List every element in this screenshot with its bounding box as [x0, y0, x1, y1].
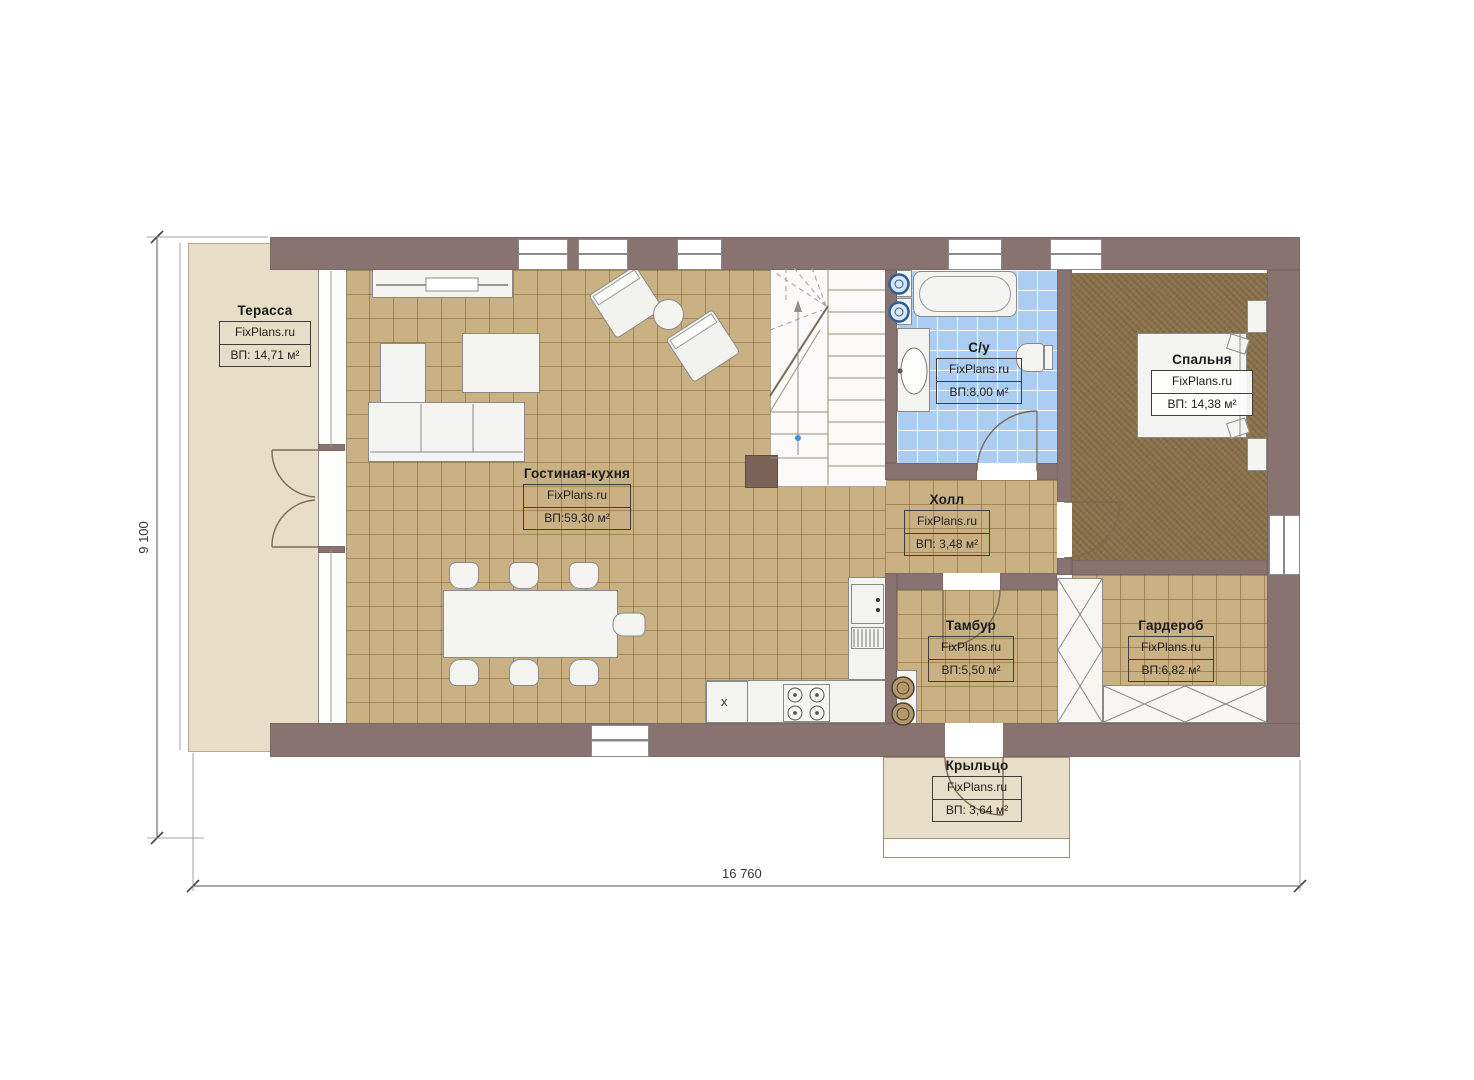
room-name: Крыльцо	[932, 758, 1022, 773]
room-info-box: FixPlans.ru ВП: 14,38 м²	[1151, 370, 1253, 416]
room-area: ВП:5,50 м²	[929, 659, 1013, 682]
dining-chair	[613, 613, 646, 637]
watermark-text: FixPlans.ru	[929, 637, 1013, 659]
kitchen-sink	[851, 584, 884, 624]
room-name: Тамбур	[928, 618, 1014, 633]
room-label-terrace: Терасса FixPlans.ru ВП: 14,71 м²	[219, 303, 311, 367]
coffee-table	[462, 333, 540, 393]
room-area: ВП:8,00 м²	[937, 381, 1021, 404]
dimension-label-vertical: 9 100	[136, 521, 151, 554]
wall-bedroom-wardrobe	[1072, 560, 1267, 575]
room-area: ВП: 3,64 м²	[933, 799, 1021, 822]
appliance-mark-label: x	[721, 694, 728, 709]
room-name: Спальня	[1151, 352, 1253, 367]
wardrobe-cabinet-left	[1057, 578, 1103, 723]
room-name: Гостиная-кухня	[523, 466, 631, 481]
wall-kitchen-vestibule	[885, 573, 897, 723]
watermark-text: FixPlans.ru	[1129, 637, 1213, 659]
wall-bedroom-left-upper	[1057, 270, 1072, 502]
entrance-door-opening	[945, 723, 1003, 757]
room-name: Холл	[904, 492, 990, 507]
tv-console	[372, 268, 513, 298]
room-label-bathroom: С/у FixPlans.ru ВП:8,00 м²	[936, 340, 1022, 404]
room-label-vestibule: Тамбур FixPlans.ru ВП:5,50 м²	[928, 618, 1014, 682]
dining-chair	[509, 659, 539, 686]
room-info-box: FixPlans.ru ВП: 3,48 м²	[904, 510, 990, 556]
room-area: ВП: 14,71 м²	[220, 344, 310, 367]
room-info-box: FixPlans.ru ВП:5,50 м²	[928, 636, 1014, 682]
window-top-2	[578, 239, 628, 270]
terrace-glazed-wall	[318, 270, 347, 723]
dining-chair	[509, 562, 539, 589]
sofa	[368, 402, 525, 462]
room-area: ВП: 3,48 м²	[905, 533, 989, 556]
room-area: ВП:6,82 м²	[1129, 659, 1213, 682]
chimney-flue	[745, 455, 778, 488]
room-name: Гардероб	[1128, 618, 1214, 633]
terrace-door-jamb-bottom	[318, 546, 345, 553]
sofa-chaise	[380, 343, 426, 411]
floor-plan-page: { "plan": { "brand_watermark": "FixPlans…	[0, 0, 1474, 1080]
bathtub	[913, 271, 1017, 317]
watermark-text: FixPlans.ru	[524, 485, 630, 507]
wall-bottom	[270, 723, 1300, 757]
watermark-text: FixPlans.ru	[220, 322, 310, 344]
room-label-bedroom: Спальня FixPlans.ru ВП: 14,38 м²	[1151, 352, 1253, 416]
room-name: С/у	[936, 340, 1022, 355]
dimension-label-horizontal: 16 760	[722, 866, 762, 881]
staircase-area	[770, 268, 887, 487]
room-area: ВП:59,30 м²	[524, 507, 630, 530]
room-info-box: FixPlans.ru ВП:8,00 м²	[936, 358, 1022, 404]
watermark-text: FixPlans.ru	[905, 511, 989, 533]
room-area: ВП: 14,38 м²	[1152, 393, 1252, 416]
wall-hall-vestibule-left	[897, 573, 943, 590]
toilet-tank	[1044, 345, 1053, 370]
bathroom-vanity	[897, 328, 930, 412]
room-info-box: FixPlans.ru ВП: 14,71 м²	[219, 321, 311, 367]
dish-drainer	[851, 627, 884, 649]
bathtub-basin	[919, 276, 1011, 312]
window-top-1	[518, 239, 568, 270]
wall-hall-vestibule-right	[1000, 573, 1057, 590]
dining-chair	[449, 562, 479, 589]
watermark-text: FixPlans.ru	[933, 777, 1021, 799]
terrace-door-jamb-top	[318, 444, 345, 451]
room-info-box: FixPlans.ru ВП:59,30 м²	[523, 484, 631, 530]
wardrobe-cabinet-bottom	[1103, 685, 1267, 723]
window-top-3	[677, 239, 722, 270]
wall-bathroom-hall-left	[885, 463, 977, 480]
room-info-box: FixPlans.ru ВП: 3,64 м²	[932, 776, 1022, 822]
dining-chair	[569, 562, 599, 589]
watermark-text: FixPlans.ru	[937, 359, 1021, 381]
wall-stairs-bathroom	[885, 270, 897, 463]
window-bottom-living	[591, 725, 649, 757]
room-label-wardrobe: Гардероб FixPlans.ru ВП:6,82 м²	[1128, 618, 1214, 682]
wall-bedroom-left-lower	[1057, 558, 1072, 575]
side-table	[653, 299, 684, 330]
dining-chair	[569, 659, 599, 686]
wall-top	[270, 237, 1300, 270]
room-label-hall: Холл FixPlans.ru ВП: 3,48 м²	[904, 492, 990, 556]
room-label-living-kitchen: Гостиная-кухня FixPlans.ru ВП:59,30 м²	[523, 466, 631, 530]
porch-step	[883, 838, 1070, 858]
watermark-text: FixPlans.ru	[1152, 371, 1252, 393]
dining-table	[443, 590, 618, 658]
stove	[783, 684, 830, 722]
wall-right	[1267, 270, 1300, 757]
nightstand-1	[1247, 300, 1267, 333]
room-info-box: FixPlans.ru ВП:6,82 м²	[1128, 636, 1214, 682]
dining-chair	[449, 659, 479, 686]
window-top-bathroom	[948, 239, 1002, 270]
window-right-bedroom	[1269, 515, 1300, 575]
room-label-porch: Крыльцо FixPlans.ru ВП: 3,64 м²	[932, 758, 1022, 822]
room-name: Терасса	[219, 303, 311, 318]
nightstand-2	[1247, 438, 1267, 471]
window-top-bedroom	[1050, 239, 1102, 270]
